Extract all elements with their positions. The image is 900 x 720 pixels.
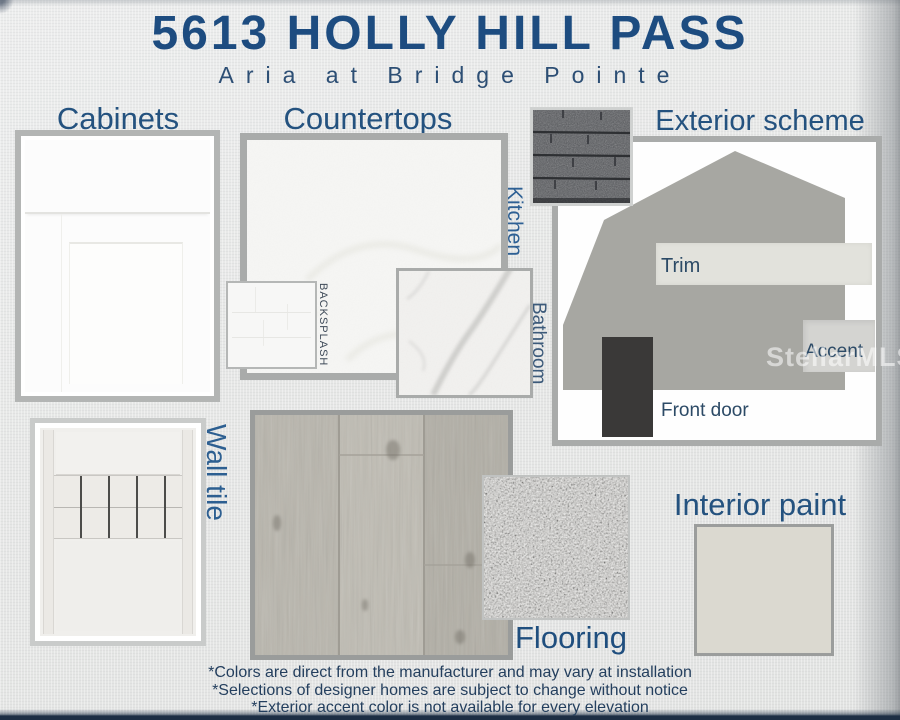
kitchen-label: Kitchen [502,186,526,256]
disclaimer-text: *Colors are direct from the manufacturer… [0,664,900,717]
wall-tile-sample [30,418,206,646]
cabinet-drawer-front [25,140,210,214]
wall-tile-side-strip [43,430,54,634]
carpet-texture [484,477,628,618]
bathroom-countertop-sample [396,268,533,398]
cabinet-sample [15,130,220,402]
page-title: 5613 HOLLY HILL PASS [0,6,900,61]
wall-tile-face [40,428,196,636]
cabinet-stile-line [61,214,62,392]
carpet-sample [482,475,630,620]
interior-paint-label: Interior paint [660,487,860,523]
stellar-mls-watermark: StellarMLS [766,342,900,373]
wall-tile-top-tile [56,432,180,475]
backsplash-tile-grid [232,287,311,363]
countertops-label: Countertops [258,101,478,137]
roof-shingle-sample [530,107,633,206]
shingle-texture [533,110,630,203]
footnote-line: *Exterior accent color is not available … [0,699,900,717]
design-board: 5613 HOLLY HILL PASS Aria at Bridge Poin… [0,0,900,720]
trim-label: Trim [661,255,700,278]
backsplash-label: BACKSPLASH [317,283,329,366]
footnote-line: *Selections of designer homes are subjec… [0,682,900,700]
wall-tile-mosaic-band [54,475,182,539]
front-door-label: Front door [661,400,749,422]
mosaic-grout-lines [54,476,182,538]
bathroom-label: Bathroom [527,302,549,384]
exterior-scheme-label: Exterior scheme [625,105,895,138]
wall-tile-bottom-tile [56,541,180,631]
interior-paint-swatch [694,524,834,656]
cabinet-door-face [25,140,210,392]
flooring-label: Flooring [515,620,627,656]
backsplash-sample [226,281,317,369]
marble-texture [399,271,530,395]
page-subtitle: Aria at Bridge Pointe [0,62,900,89]
wood-plank-texture [255,415,508,655]
flooring-sample [250,410,513,660]
wall-tile-side-strip [182,430,193,634]
footnote-line: *Colors are direct from the manufacturer… [0,664,900,682]
front-door-swatch [602,337,653,437]
cabinet-door-panel [69,242,183,384]
